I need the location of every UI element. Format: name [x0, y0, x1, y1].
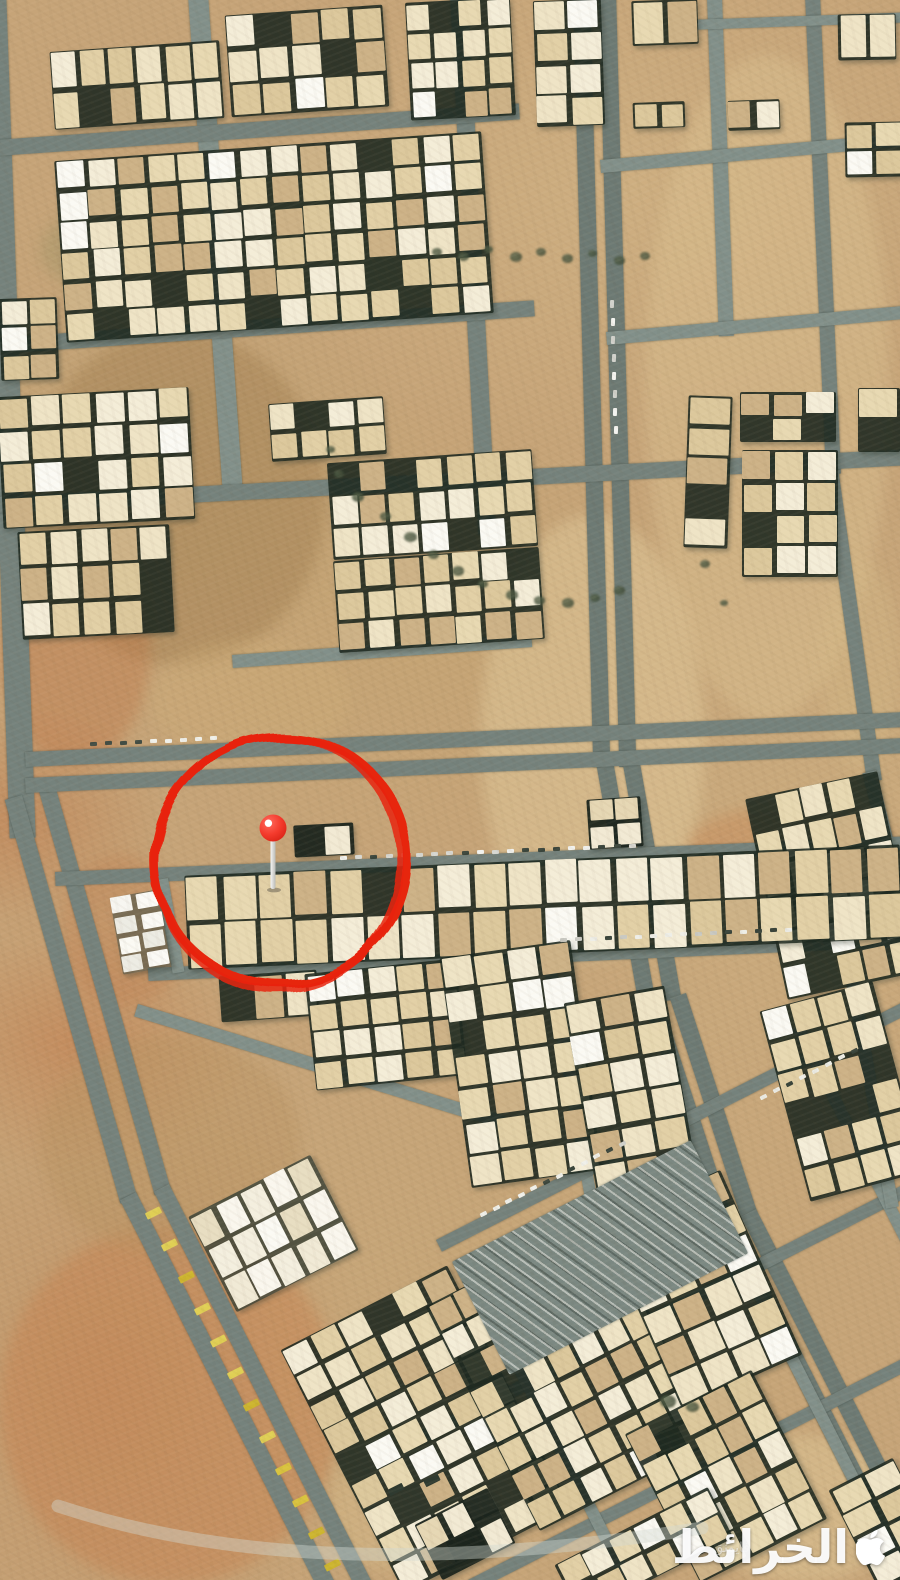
- satellite-map[interactable]: فايونق الخرائط: [0, 0, 900, 1580]
- highlight-circle-annotation: [140, 721, 422, 1000]
- annotation-layer: [0, 0, 900, 1580]
- map-pin[interactable]: [260, 815, 287, 893]
